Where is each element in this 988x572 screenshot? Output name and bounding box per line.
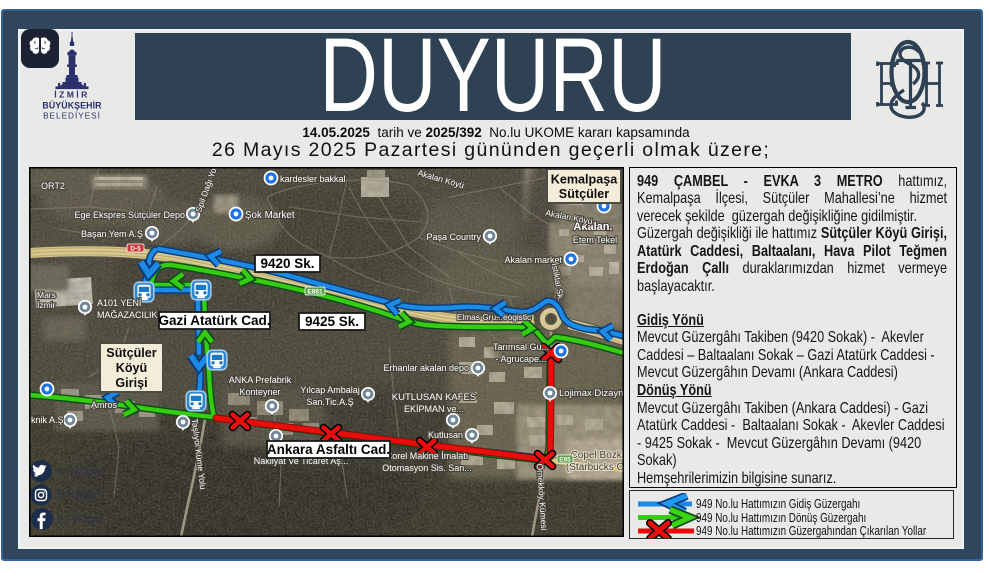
svg-text:@eshotgm: @eshotgm: [56, 466, 102, 477]
svg-text:E881: E881: [307, 288, 323, 295]
svg-text:San.Tic.A.Ş: San.Tic.A.Ş: [306, 397, 353, 407]
svg-text:Kemalpaşa: Kemalpaşa: [551, 172, 619, 186]
svg-text:Gazi Atatürk Cad.: Gazi Atatürk Cad.: [158, 313, 270, 328]
svg-text:Amros: Amros: [91, 400, 118, 410]
svg-text:MAĞAZACILIK...: MAĞAZACILIK...: [97, 310, 165, 320]
svg-text:kardesler bakkal: kardesler bakkal: [280, 174, 346, 184]
svg-text:Elmas Gru...eogistic: Elmas Gru...eogistic: [457, 312, 531, 322]
svg-text:Mars: Mars: [37, 290, 56, 300]
svg-text:Sütçüler: Sütçüler: [106, 346, 156, 360]
svg-text:E95: E95: [559, 456, 571, 463]
svg-text:Yılcap Ambalaj: Yılcap Ambalaj: [300, 385, 360, 395]
svg-text:Etem Tekel: Etem Tekel: [573, 235, 617, 245]
svg-text:BELEDİYESİ: BELEDİYESİ: [43, 111, 101, 121]
svg-text:BÜYÜKŞEHİR: BÜYÜKŞEHİR: [42, 101, 102, 111]
svg-text:KUTLUSAN KAFES: KUTLUSAN KAFES: [392, 392, 476, 403]
svg-text:Corel Makine İmalatı: Corel Makine İmalatı: [386, 451, 469, 461]
svg-text:knik A.Ş: knik A.Ş: [31, 415, 64, 425]
svg-text:9425 Sk.: 9425 Sk.: [305, 314, 359, 329]
svg-text:EKİPMAN ve...: EKİPMAN ve...: [404, 404, 464, 414]
svg-text:Otomasyon Sis. San...: Otomasyon Sis. San...: [382, 463, 472, 473]
svg-text:Girişi: Girişi: [115, 376, 147, 390]
svg-text:Şok Market: Şok Market: [245, 210, 295, 221]
svg-text:(Starbucks C...: (Starbucks C...: [566, 462, 624, 473]
svg-text:Lojimax Dizayn F: Lojimax Dizayn F: [559, 388, 624, 399]
svg-text:Konteyner: Konteyner: [239, 387, 280, 397]
svg-text:ANKA Prefabrik: ANKA Prefabrik: [229, 375, 292, 385]
svg-text:İZMİR: İZMİR: [54, 90, 89, 100]
svg-text:İzmir: İzmir: [37, 300, 56, 310]
svg-text:Başan Yem A.Ş: Başan Yem A.Ş: [81, 229, 143, 239]
svg-text:Ankara Asfaltı Cad.: Ankara Asfaltı Cad.: [267, 442, 390, 457]
svg-text:D-5: D-5: [130, 245, 141, 252]
svg-text:9420 Sk.: 9420 Sk.: [260, 256, 314, 271]
svg-text:Copel Bozka: Copel Bozka: [571, 450, 624, 461]
svg-text:A101 YENİ: A101 YENİ: [97, 298, 141, 308]
svg-text:Kutlusan: Kutlusan: [428, 430, 463, 440]
svg-text:ORT2: ORT2: [41, 181, 65, 191]
svg-text:- Agrucape...: - Agrucape...: [495, 354, 546, 364]
svg-text:@eshotgm: @eshotgm: [56, 490, 102, 501]
svg-text:Tarımsal Gü...: Tarımsal Gü...: [493, 342, 549, 352]
svg-text:Paşa Country: Paşa Country: [426, 232, 481, 242]
svg-text:Köyü: Köyü: [116, 361, 147, 375]
svg-text:@eshotgm: @eshotgm: [56, 514, 102, 525]
svg-text:Ege Ekspres Sütçüler Depo: Ege Ekspres Sütçüler Depo: [74, 210, 185, 220]
svg-text:Sütçüler: Sütçüler: [559, 187, 609, 201]
svg-text:Erhanlar akalan depo: Erhanlar akalan depo: [383, 363, 469, 373]
